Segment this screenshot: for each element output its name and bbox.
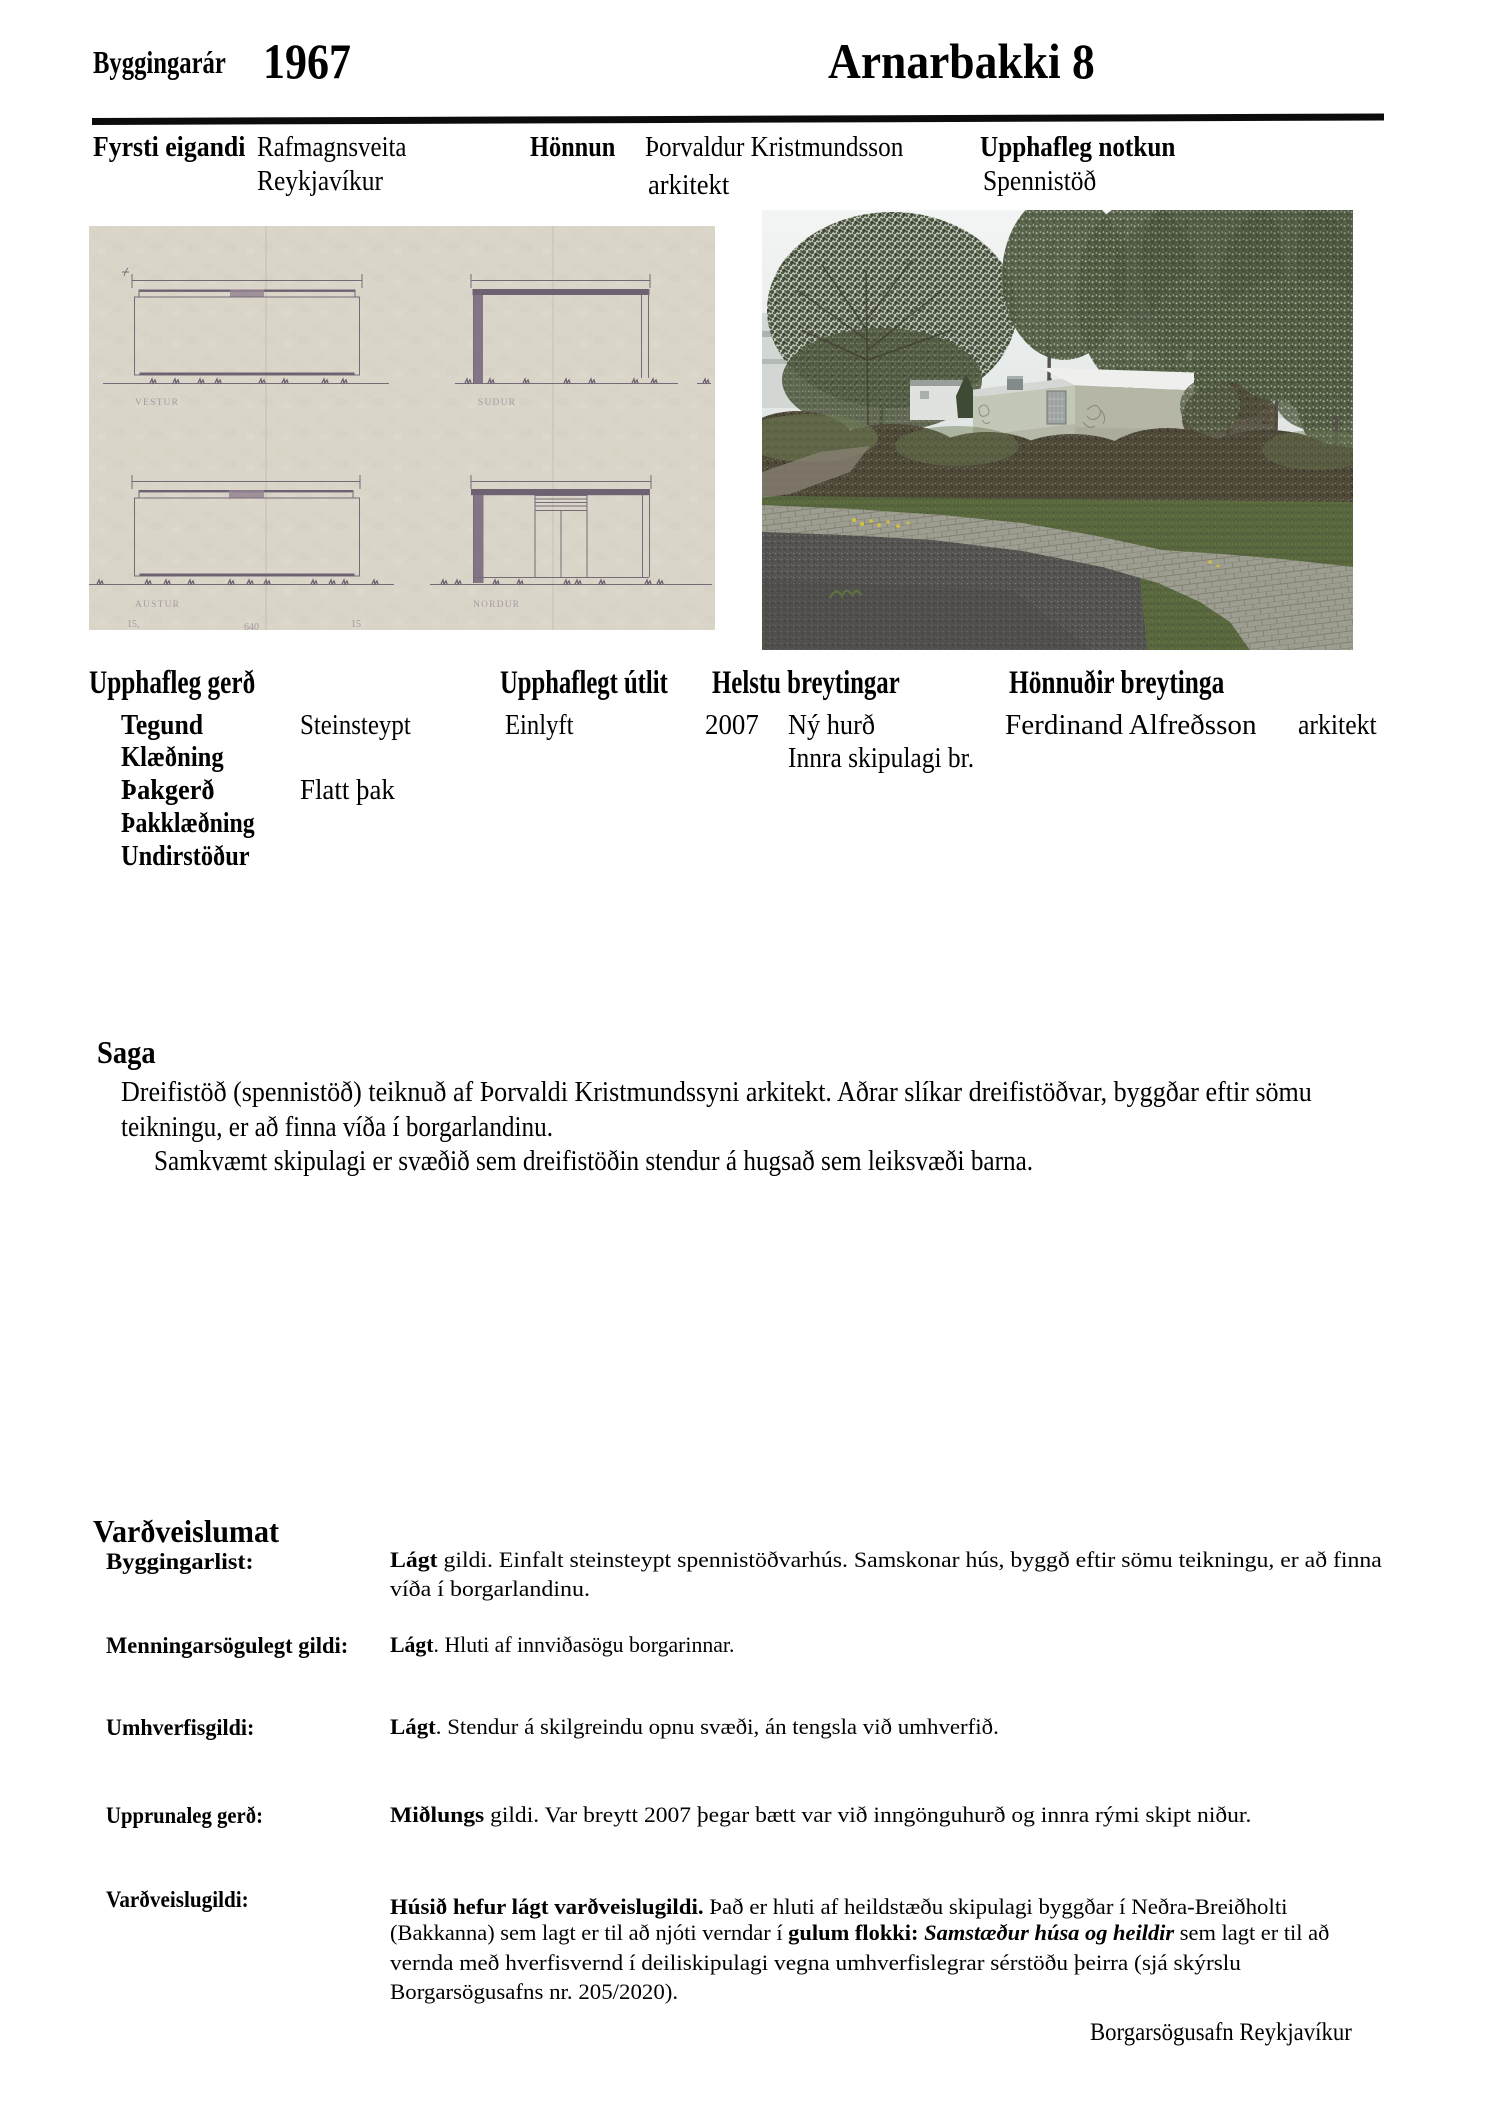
svg-text:NORDUR: NORDUR	[473, 600, 520, 610]
svg-text:15,: 15,	[127, 619, 140, 630]
svg-text:640: 640	[244, 622, 259, 630]
svg-text:VESTUR: VESTUR	[135, 398, 179, 408]
svg-text:AUSTUR: AUSTUR	[135, 600, 180, 610]
svg-text:15: 15	[351, 619, 361, 630]
svg-text:SUDUR: SUDUR	[478, 398, 516, 408]
